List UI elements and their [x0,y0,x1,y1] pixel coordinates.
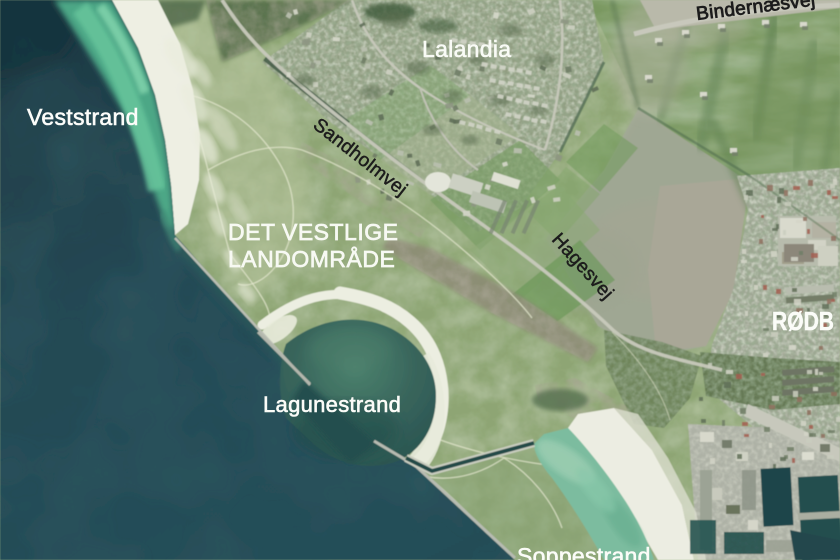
svg-text:Veststrand: Veststrand [27,104,139,130]
svg-text:DET VESTLIGE: DET VESTLIGE [228,219,398,245]
svg-text:Lalandia: Lalandia [422,36,511,62]
svg-text:Lagunestrand: Lagunestrand [263,392,401,417]
svg-text:Soppestrand: Soppestrand [517,543,651,560]
svg-text:LANDOMRÅDE: LANDOMRÅDE [228,245,395,272]
svg-text:RØDB: RØDB [772,306,834,336]
